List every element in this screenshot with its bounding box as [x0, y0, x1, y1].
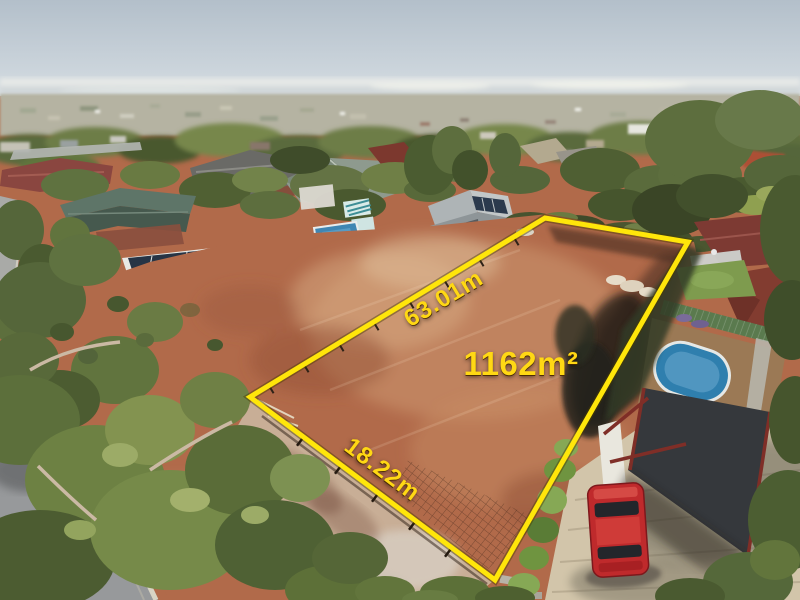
scene-canvas [0, 0, 800, 600]
basketball-hoop [711, 249, 717, 255]
aerial-photo: 63.01m 18.22m 1162m² [0, 0, 800, 600]
area-label: 1162m² [464, 345, 579, 383]
